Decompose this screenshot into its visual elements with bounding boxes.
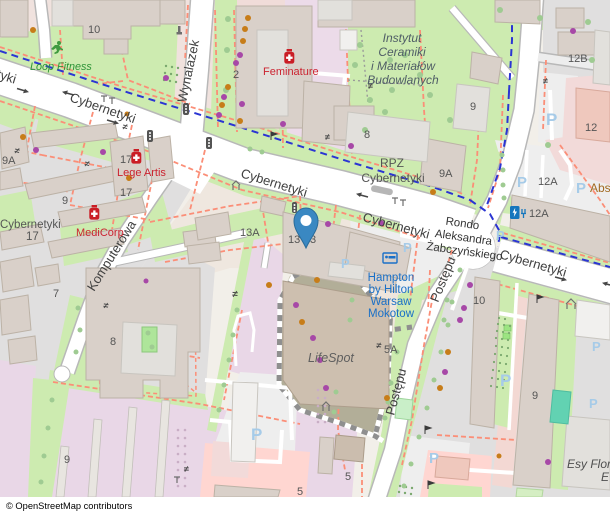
svg-text:Warsaw: Warsaw: [370, 296, 412, 308]
svg-text:5A: 5A: [384, 344, 398, 356]
svg-text:9: 9: [470, 101, 476, 113]
svg-text:Budowlanych: Budowlanych: [367, 73, 439, 87]
svg-text:2: 2: [233, 69, 239, 81]
svg-text:by Hilton: by Hilton: [369, 284, 414, 296]
svg-text:Cybernetyki: Cybernetyki: [361, 171, 424, 185]
svg-text:12: 12: [585, 122, 597, 134]
svg-text:P: P: [592, 339, 601, 354]
svg-text:9A: 9A: [439, 168, 453, 180]
svg-text:Abst: Abst: [590, 181, 610, 195]
svg-text:9: 9: [532, 390, 538, 402]
svg-text:≠: ≠: [325, 132, 330, 142]
svg-text:Loop Fitness: Loop Fitness: [30, 61, 92, 73]
svg-text:RPZ: RPZ: [380, 156, 404, 170]
svg-text:P: P: [500, 371, 511, 390]
svg-text:Lege Artis: Lege Artis: [117, 167, 166, 179]
svg-text:13A: 13A: [240, 227, 260, 239]
svg-text:Feminature: Feminature: [263, 66, 319, 78]
svg-text:P: P: [589, 396, 598, 411]
svg-text:≠: ≠: [184, 464, 189, 474]
svg-text:13: 13: [288, 234, 300, 246]
svg-text:5: 5: [345, 471, 351, 483]
svg-text:Esy Flores: Esy Flores: [567, 457, 610, 471]
svg-text:P: P: [403, 240, 412, 255]
svg-text:P: P: [546, 110, 557, 129]
svg-text:12B: 12B: [568, 53, 588, 65]
svg-text:12A: 12A: [538, 176, 558, 188]
svg-text:P: P: [341, 256, 350, 271]
svg-text:10: 10: [473, 295, 485, 307]
svg-text:P: P: [576, 180, 586, 197]
svg-text:9: 9: [62, 195, 68, 207]
svg-text:Cybernetyki: Cybernetyki: [0, 219, 61, 231]
svg-text:12A: 12A: [529, 208, 549, 220]
svg-text:9A: 9A: [2, 155, 16, 167]
svg-text:8: 8: [110, 336, 116, 348]
svg-text:P: P: [496, 228, 505, 243]
svg-text:Instytut: Instytut: [383, 31, 422, 45]
svg-text:Mokotow: Mokotow: [368, 308, 415, 320]
svg-text:LifeSpot: LifeSpot: [308, 351, 354, 365]
svg-text:Ceramiki: Ceramiki: [378, 45, 426, 59]
svg-text:17: 17: [26, 231, 39, 243]
svg-text:5: 5: [297, 486, 303, 498]
svg-text:P: P: [429, 450, 439, 467]
svg-text:17: 17: [120, 187, 132, 199]
svg-text:10: 10: [88, 24, 100, 36]
svg-text:P: P: [251, 425, 262, 444]
svg-text:8: 8: [364, 129, 370, 141]
svg-text:MediCorp: MediCorp: [76, 227, 124, 239]
svg-text:7: 7: [53, 288, 59, 300]
svg-text:≠: ≠: [543, 76, 548, 86]
svg-text:P: P: [517, 174, 527, 191]
svg-text:Hampton: Hampton: [368, 272, 415, 284]
svg-text:i Materiałów: i Materiałów: [371, 59, 436, 73]
svg-text:17: 17: [120, 154, 132, 166]
svg-text:© OpenStreetMap contributors: © OpenStreetMap contributors: [6, 501, 133, 511]
svg-text:9: 9: [64, 454, 70, 466]
svg-text:E: E: [601, 470, 610, 484]
